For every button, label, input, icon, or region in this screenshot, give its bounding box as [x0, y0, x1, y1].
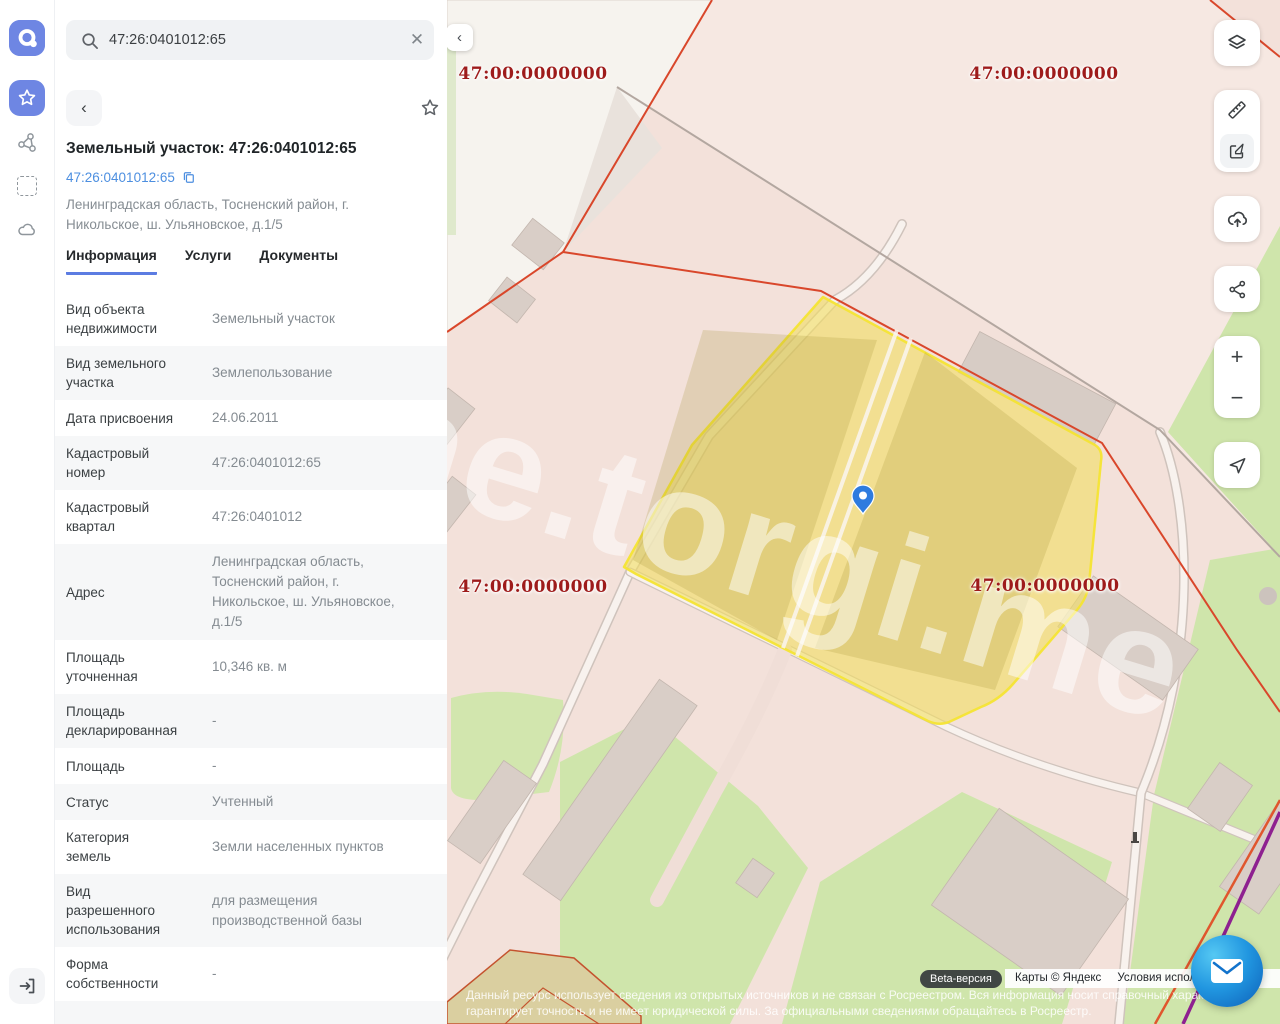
upload-button[interactable] [1214, 196, 1260, 242]
ruler-icon [1226, 99, 1248, 121]
share-icon [1227, 279, 1248, 300]
table-row: Вид земельного участкаЗемлепользование [54, 346, 447, 400]
object-address: Ленинградская область, Тосненский район,… [66, 195, 376, 235]
row-label: Площадь уточненная [66, 648, 176, 686]
row-label: Вид объекта недвижимости [66, 300, 176, 338]
exit-icon [17, 976, 37, 996]
app-logo[interactable] [9, 20, 45, 56]
close-icon[interactable]: ✕ [400, 30, 434, 50]
table-row: АдресЛенинградская область, Тосненский р… [54, 544, 447, 640]
row-value: 47:26:0401012 [212, 507, 417, 527]
edit-icon [1227, 141, 1247, 161]
zoom-in-button[interactable]: + [1214, 336, 1260, 377]
layers-icon [1226, 32, 1248, 54]
tab-information[interactable]: Информация [66, 247, 157, 275]
cadastral-quarter-label: 47:00:0000000 [969, 64, 1118, 84]
table-row: СтатусУчтенный [54, 784, 447, 820]
row-label: Площадь [66, 757, 176, 776]
row-label: Адрес [66, 583, 176, 602]
edit-button-bg [1220, 134, 1254, 168]
row-value: Земельный участок [212, 309, 417, 329]
navigate-arrow-icon [1227, 455, 1248, 476]
cloud-icon [16, 219, 38, 241]
row-value: Землепользование [212, 363, 417, 383]
cadastral-quarter-label: 47:00:0000000 [970, 576, 1119, 596]
row-label: Категория земель [66, 828, 176, 866]
copy-icon[interactable] [181, 170, 196, 185]
table-row: Вид объекта недвижимостиЗемельный участо… [54, 292, 447, 346]
row-label: Форма собственности [66, 955, 176, 993]
layers-button[interactable] [1214, 20, 1260, 66]
row-label: Дата присвоения [66, 409, 176, 428]
app-logo-icon [9, 20, 45, 56]
envelope-icon [1210, 958, 1244, 984]
map-canvas[interactable]: ne.torgi.me 47:00:0000000 47:00:0000000 … [447, 0, 1280, 1024]
edit-button[interactable] [1214, 130, 1260, 172]
tab-bar: Информация Услуги Документы [66, 247, 338, 275]
table-row: Категория земельЗемли населенных пунктов [54, 820, 447, 874]
row-value: Земли населенных пунктов [212, 837, 417, 857]
table-row: Кадастровый номер47:26:0401012:65 [54, 436, 447, 490]
map-drawing [447, 0, 1280, 1024]
favorite-button[interactable] [418, 96, 442, 120]
row-value: Учтенный [212, 792, 417, 812]
sidebar-item-select-area[interactable] [9, 168, 45, 204]
row-label: Вид разрешенного использования [66, 882, 176, 939]
plus-icon: + [1231, 346, 1244, 368]
row-value: 10,346 кв. м [212, 657, 417, 677]
star-icon [419, 97, 441, 119]
row-label: Статус [66, 793, 176, 812]
row-value: для размещения производственной базы [212, 891, 417, 931]
row-value: 47:26:0401012:65 [212, 453, 417, 473]
table-row: Дата присвоения24.06.2011 [54, 400, 447, 436]
row-value: - [212, 964, 417, 984]
map-share-button[interactable] [1214, 266, 1260, 312]
row-label: Вид земельного участка [66, 354, 176, 392]
object-panel: ✕ ‹ Земельный участок: 47:26:0401012:65 … [54, 0, 447, 1024]
sidebar-item-favorites[interactable] [9, 80, 45, 116]
ruler-button[interactable] [1214, 90, 1260, 130]
zoom-out-button[interactable]: − [1214, 377, 1260, 418]
layers-control [1214, 20, 1260, 66]
cadastral-quarter-label: 47:00:0000000 [458, 64, 607, 84]
table-row: Кадастровый квартал47:26:0401012 [54, 490, 447, 544]
table-row: Площадь декларированная- [54, 694, 447, 748]
back-button[interactable]: ‹ [66, 90, 102, 126]
locate-control [1214, 442, 1260, 488]
table-row: Площадь- [54, 748, 447, 784]
row-value: Ленинградская область, Тосненский район,… [212, 552, 417, 632]
cadastral-number-link[interactable]: 47:26:0401012:65 [66, 170, 196, 185]
row-value: 24.06.2011 [212, 408, 417, 428]
row-label: Площадь декларированная [66, 702, 176, 740]
minus-icon: − [1231, 387, 1244, 409]
chat-button[interactable] [1191, 935, 1263, 1007]
table-row: Форма собственности- [54, 947, 447, 1001]
beta-badge: Beta-версия [920, 970, 1002, 988]
tab-documents[interactable]: Документы [259, 247, 338, 275]
cadastral-quarter-label: 47:00:0000000 [458, 577, 607, 597]
search-icon [80, 31, 99, 50]
page-title: Земельный участок: 47:26:0401012:65 [66, 140, 357, 158]
copyright-text[interactable]: Карты © Яндекс [1015, 972, 1101, 984]
graph-icon [17, 132, 38, 153]
search-input[interactable] [107, 31, 400, 49]
locate-button[interactable] [1214, 442, 1260, 488]
row-value: - [212, 711, 417, 731]
row-label: Кадастровый квартал [66, 498, 176, 536]
sidebar-item-cloud[interactable] [9, 212, 45, 248]
search-box: ✕ [66, 20, 434, 60]
sidebar-item-graph[interactable] [9, 124, 45, 160]
table-row-partial [54, 1001, 447, 1024]
upload-control [1214, 196, 1260, 242]
left-sidebar [0, 0, 55, 1024]
zoom-control: + − [1214, 336, 1260, 418]
collapse-panel-button[interactable]: ‹ [447, 24, 473, 51]
star-icon [16, 87, 38, 109]
row-value: - [212, 756, 417, 776]
share-control [1214, 266, 1260, 312]
cloud-upload-icon [1226, 208, 1249, 231]
exit-button[interactable] [9, 968, 45, 1004]
table-row: Вид разрешенного использованиядля размещ… [54, 874, 447, 947]
tab-services[interactable]: Услуги [185, 247, 232, 275]
row-label: Кадастровый номер [66, 444, 176, 482]
table-row: Площадь уточненная10,346 кв. м [54, 640, 447, 694]
select-area-icon [17, 176, 37, 196]
info-table: Вид объекта недвижимостиЗемельный участо… [54, 292, 447, 1024]
measure-edit-control [1214, 90, 1260, 172]
